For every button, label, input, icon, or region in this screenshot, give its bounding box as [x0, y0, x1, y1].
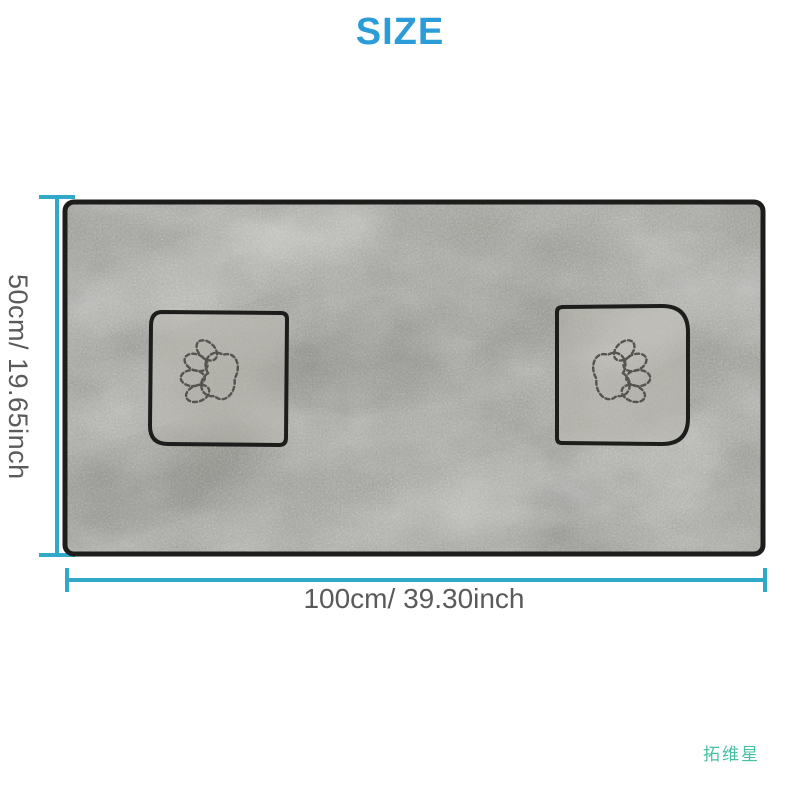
width-dimension-label: 100cm/ 39.30inch [62, 583, 766, 615]
size-title: SIZE [0, 11, 800, 54]
product-size-infographic: SIZE 50cm/ 19.65inch [0, 0, 800, 800]
brand-watermark: 拓维星 [703, 740, 760, 765]
towel-image [62, 199, 766, 558]
height-dimension-label: 50cm/ 19.65inch [2, 197, 33, 557]
height-dimension-line [55, 197, 59, 557]
width-dimension-line [65, 578, 767, 582]
fabric-grain-texture [62, 199, 766, 558]
